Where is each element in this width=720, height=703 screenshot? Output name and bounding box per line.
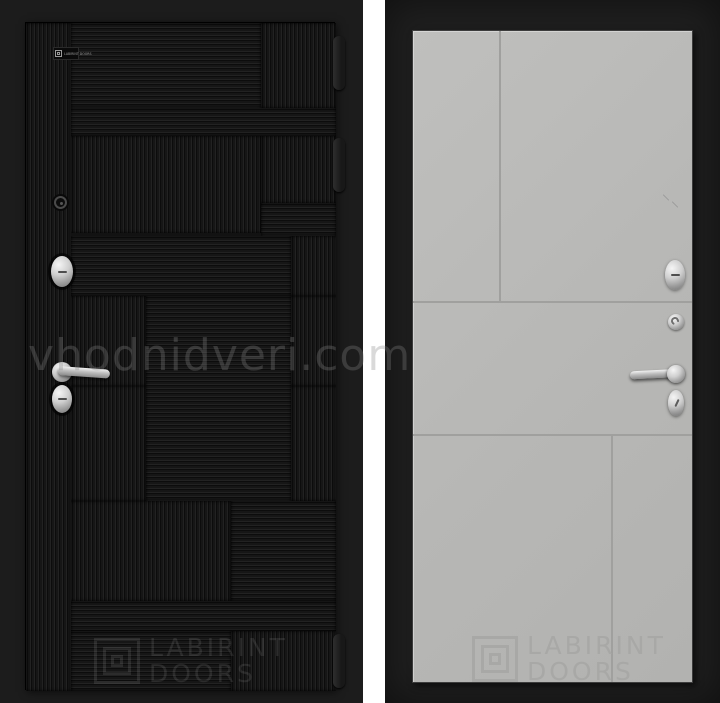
panel-groove-vertical-top [499,31,501,302]
front-door-photo: LABIRINT DOORS LABIRINT DOORS [0,0,363,703]
texture-block [71,501,231,601]
texture-block [26,23,71,691]
lower-cylinder-lock [52,385,72,413]
upper-cylinder-lock [51,256,73,287]
labirint-logo-watermark-back: LABIRINT DOORS [472,633,666,685]
texture-block [146,296,291,501]
panel-groove-horizontal-2 [413,434,692,436]
hinge-middle [333,138,345,192]
hinge-top [333,36,345,90]
texture-block [261,136,336,203]
labirint-logo-text: LABIRINT DOORS [149,635,288,687]
panel-groove-horizontal-1 [413,301,692,303]
texture-block [291,296,336,386]
texture-block [231,501,336,601]
gray-door-leaf [412,30,693,683]
texture-block [261,23,336,108]
texture-block [71,386,146,501]
texture-block [261,203,336,236]
keyhole-escutcheon [668,390,684,416]
texture-block [71,23,261,108]
door-product-image: LABIRINT DOORS LABIRINT DOORS [0,0,720,703]
back-cylinder-lock [665,260,685,290]
texture-block [291,236,336,296]
hinge-bottom [333,634,345,688]
labirint-maze-icon [55,50,62,57]
texture-block [71,236,291,296]
round-fitting [54,196,67,209]
labirint-logo-watermark: LABIRINT DOORS [94,635,288,687]
back-handle-rose [667,365,685,383]
photo-divider-gap [363,0,385,703]
texture-block [71,136,261,233]
texture-block [291,386,336,501]
brand-badge: LABIRINT DOORS [53,47,79,60]
black-door-leaf: LABIRINT DOORS LABIRINT DOORS [25,22,335,690]
texture-block [71,601,336,631]
brand-badge-label: LABIRINT DOORS [64,52,91,55]
maze-logo-icon [94,638,140,684]
texture-block [71,108,336,136]
thumbturn-knob [668,314,684,330]
maze-logo-icon [472,636,518,682]
labirint-logo-text: LABIRINT DOORS [527,633,666,685]
